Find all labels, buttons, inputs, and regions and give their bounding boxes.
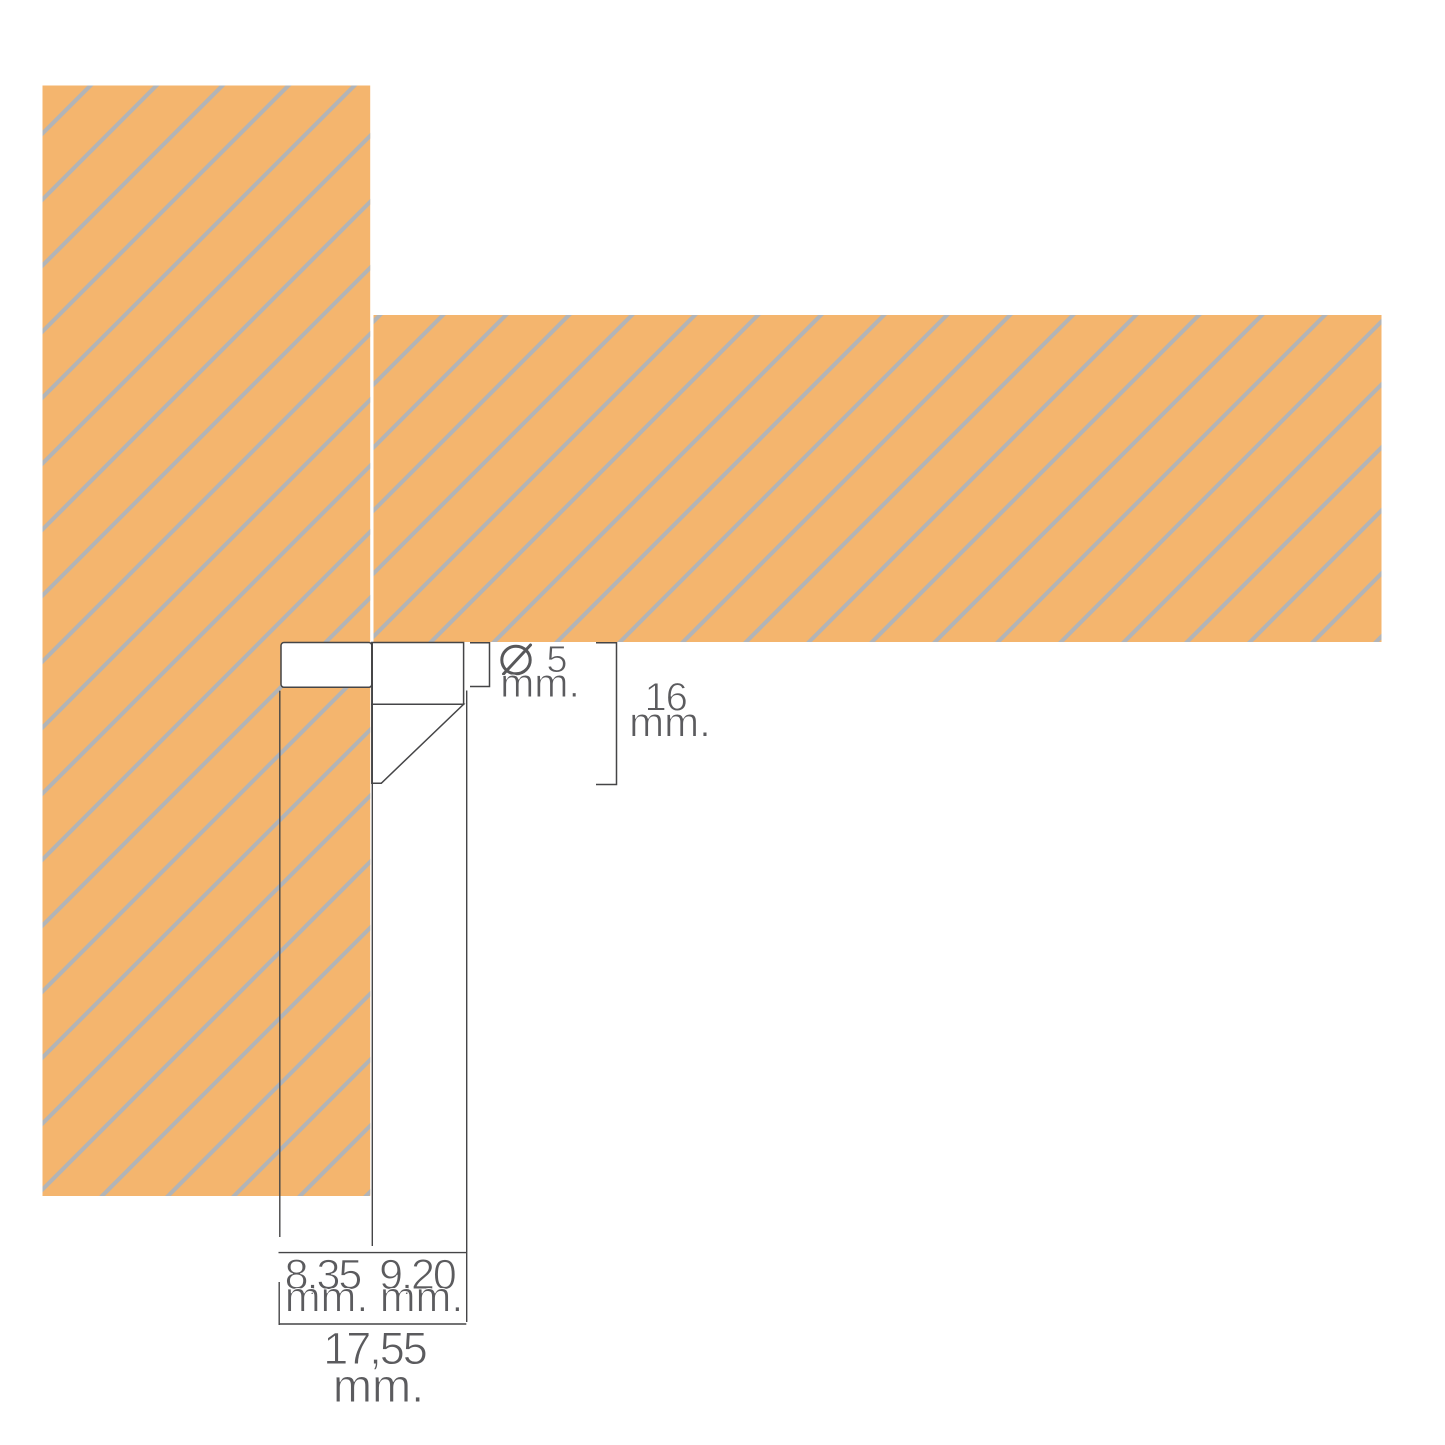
- svg-text:mm.: mm.: [500, 660, 580, 706]
- svg-text:mm.: mm.: [629, 698, 711, 745]
- svg-text:mm.: mm.: [333, 1359, 424, 1412]
- svg-text:mm.: mm.: [380, 1274, 464, 1322]
- svg-text:mm.: mm.: [285, 1274, 369, 1322]
